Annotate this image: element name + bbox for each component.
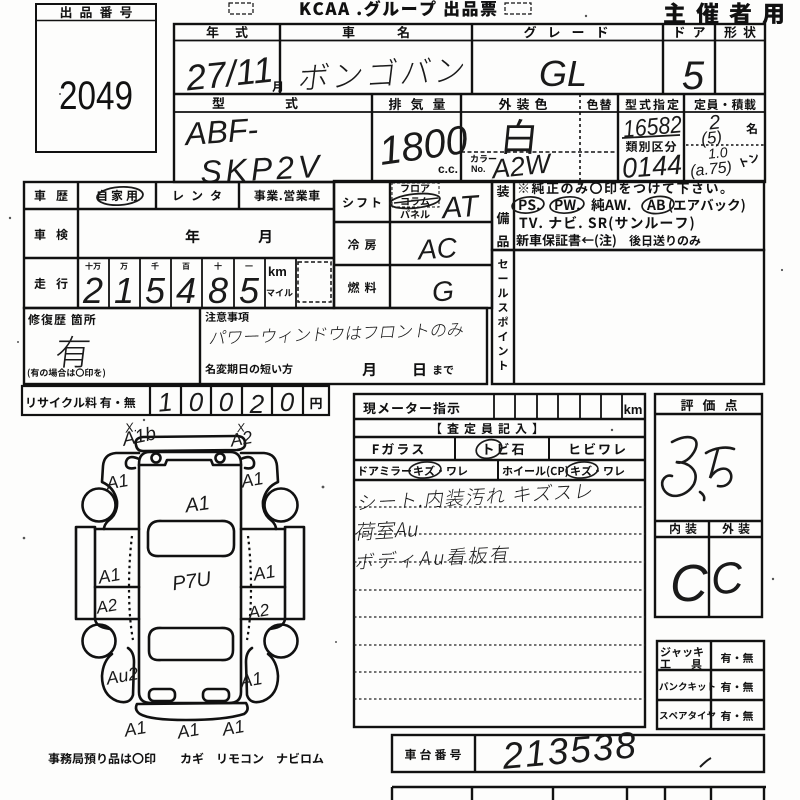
svg-text:C: C bbox=[709, 552, 747, 604]
svg-text:0: 0 bbox=[189, 387, 204, 417]
svg-text:8: 8 bbox=[208, 270, 228, 311]
svg-text:1: 1 bbox=[157, 386, 174, 417]
svg-text:0: 0 bbox=[280, 387, 295, 417]
svg-text:2: 2 bbox=[82, 270, 103, 311]
svg-text:GL: GL bbox=[539, 53, 587, 94]
svg-text:0: 0 bbox=[219, 387, 234, 417]
svg-text:1: 1 bbox=[114, 270, 134, 311]
svg-text:A2: A2 bbox=[246, 600, 271, 623]
svg-text:km: km bbox=[624, 402, 643, 417]
svg-text:2: 2 bbox=[249, 389, 265, 419]
svg-text:2049: 2049 bbox=[59, 74, 133, 118]
svg-text:A1: A1 bbox=[220, 716, 246, 740]
svg-text:SKP2V: SKP2V bbox=[199, 148, 324, 190]
svg-text:AC: AC bbox=[415, 232, 459, 266]
svg-text:5: 5 bbox=[145, 270, 166, 311]
svg-text:A1: A1 bbox=[183, 492, 211, 517]
svg-text:5: 5 bbox=[239, 270, 260, 311]
svg-text:A1: A1 bbox=[104, 470, 130, 494]
svg-text:5: 5 bbox=[682, 54, 705, 98]
svg-text:A2: A2 bbox=[228, 427, 254, 451]
svg-text:A1: A1 bbox=[96, 564, 122, 588]
svg-text:km: km bbox=[268, 264, 287, 279]
svg-text:A1: A1 bbox=[122, 717, 148, 741]
svg-text:16582: 16582 bbox=[622, 111, 683, 143]
svg-text:No.: No. bbox=[471, 164, 486, 174]
svg-text:AT: AT bbox=[439, 190, 482, 226]
svg-text:c.c.: c.c. bbox=[438, 162, 458, 176]
svg-text:ABF-: ABF- bbox=[182, 111, 259, 152]
svg-text:4: 4 bbox=[176, 270, 196, 311]
svg-text:A1: A1 bbox=[238, 668, 264, 692]
svg-text:A2: A2 bbox=[94, 595, 119, 618]
svg-text:C: C bbox=[670, 555, 708, 613]
svg-text:G: G bbox=[431, 275, 455, 307]
svg-text:A1: A1 bbox=[239, 468, 265, 492]
svg-text:A1: A1 bbox=[251, 561, 277, 585]
svg-text:0144: 0144 bbox=[621, 149, 683, 184]
svg-text:A1: A1 bbox=[175, 719, 201, 743]
